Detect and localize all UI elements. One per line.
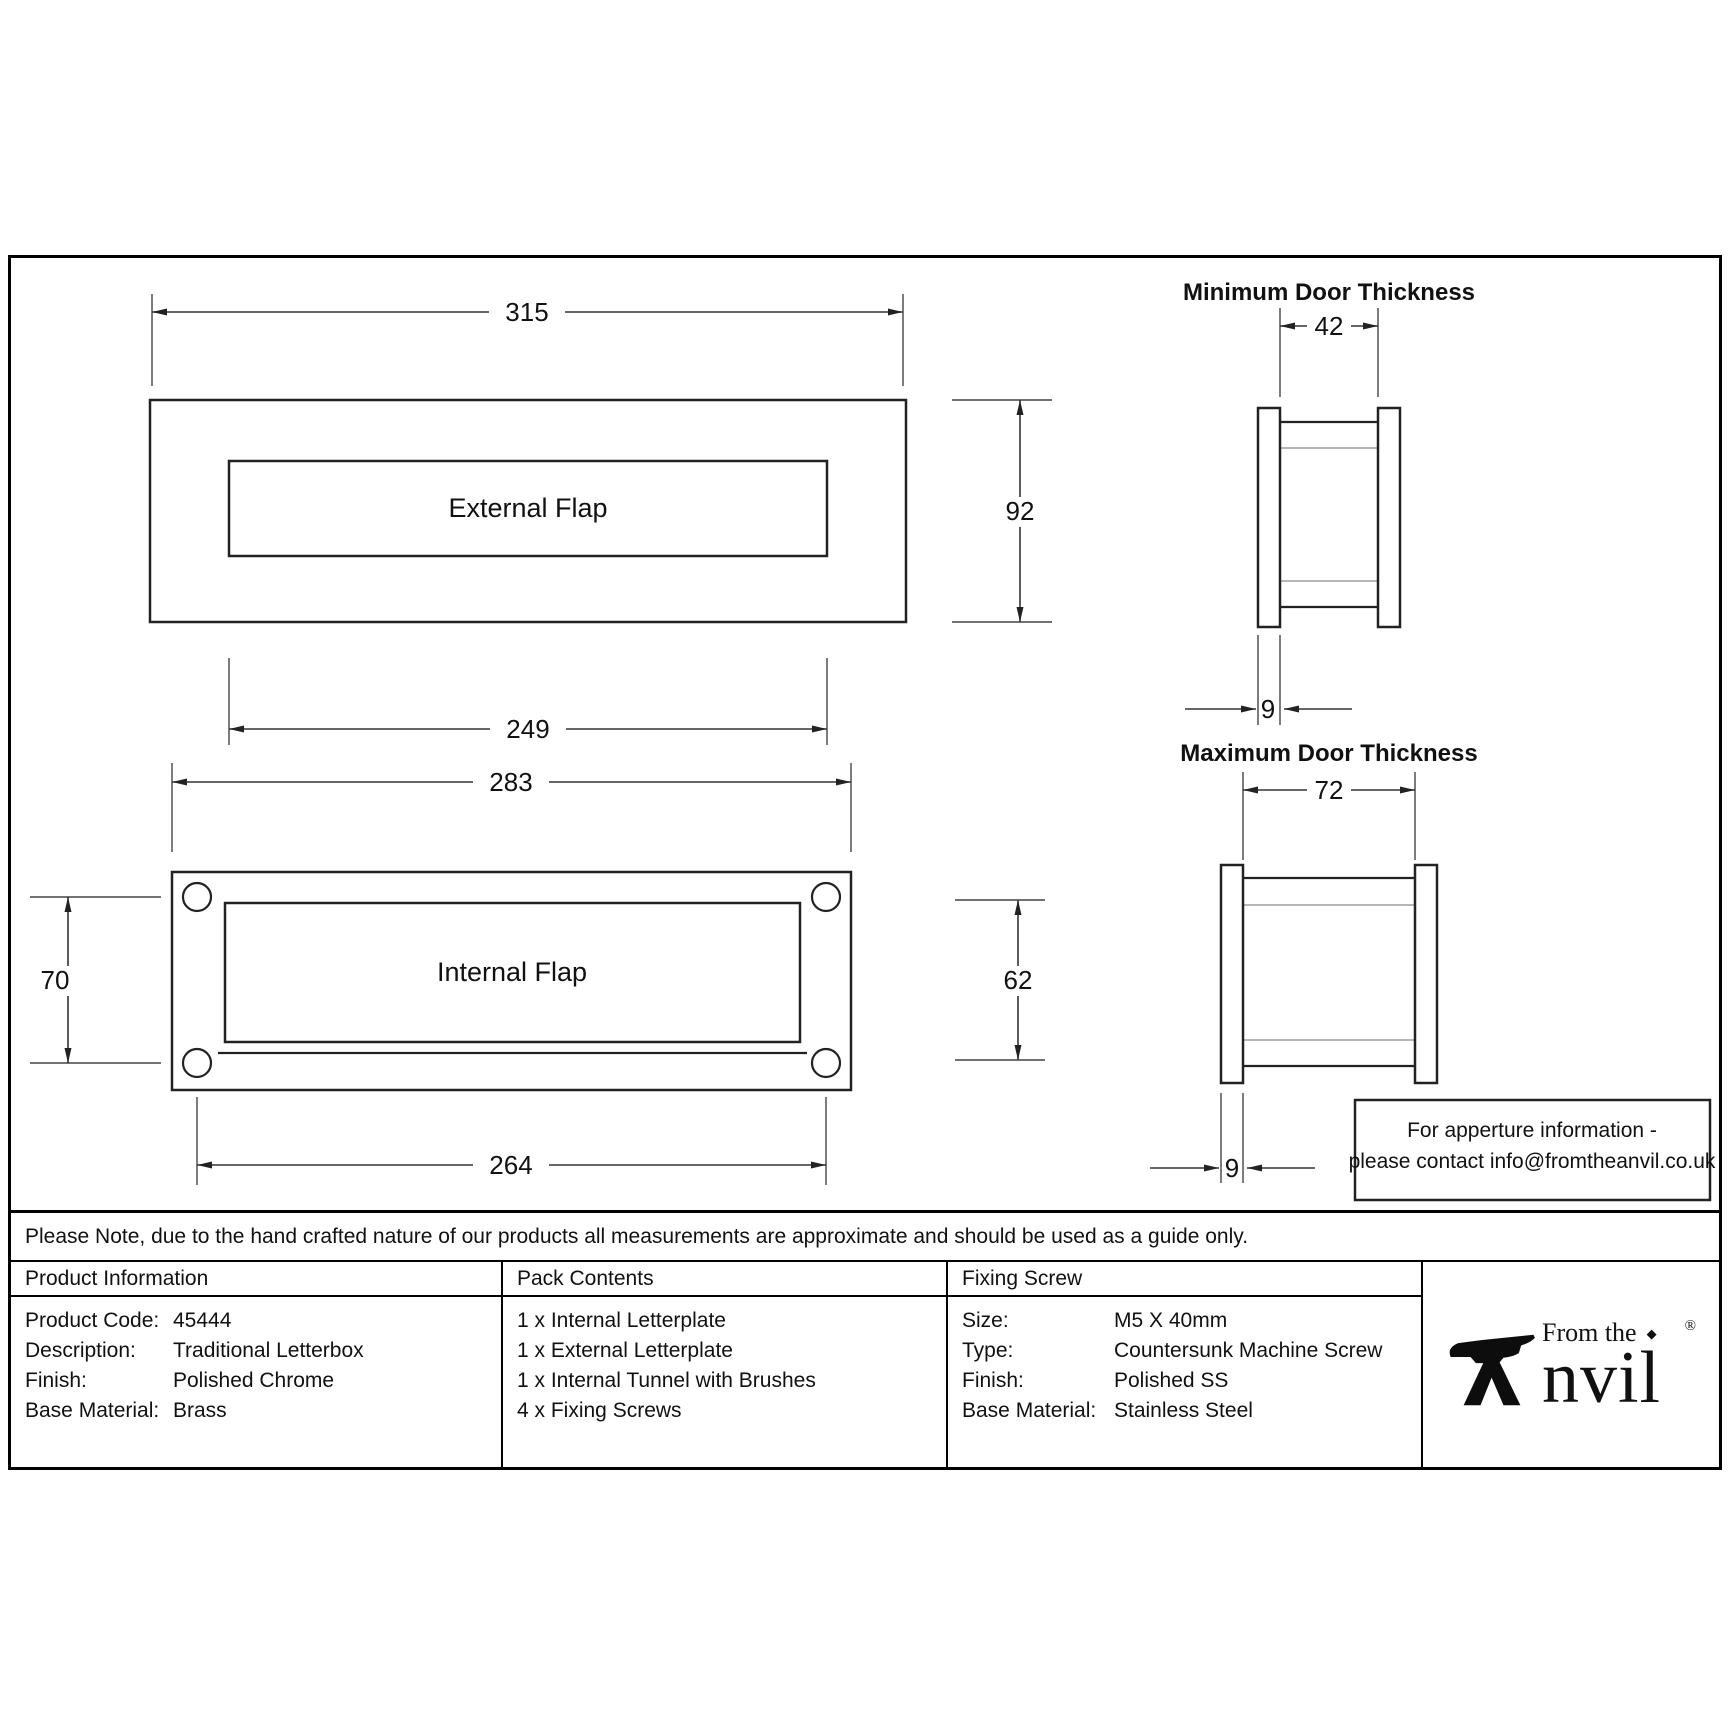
spec-sheet-frame: 315 External Flap 92 249 <box>8 255 1722 1470</box>
logo-wordmark: From the ◆ ® nvil <box>1542 1319 1696 1407</box>
row-label: Base Material: <box>25 1396 173 1426</box>
min-door-title: Minimum Door Thickness <box>1183 279 1475 306</box>
row-value: M5 X 40mm <box>1114 1306 1227 1336</box>
flap-width-dim: 249 <box>506 714 549 744</box>
plate-section <box>1415 865 1437 1083</box>
fixing-width-dim: 264 <box>489 1150 532 1180</box>
table-row: Description: Traditional Letterbox <box>25 1336 501 1366</box>
anvil-icon <box>1446 1329 1538 1411</box>
screw-hole <box>812 1049 840 1077</box>
pack-item: 1 x Internal Letterplate <box>517 1306 946 1336</box>
fixing-screw-column: Fixing Screw Size: M5 X 40mm Type: Count… <box>948 1262 1423 1467</box>
plate-section <box>1221 865 1243 1083</box>
pack-contents-body: 1 x Internal Letterplate 1 x External Le… <box>503 1297 946 1467</box>
table-row: Product Code: 45444 <box>25 1306 501 1336</box>
max-door-thickness-dim: 72 <box>1315 775 1344 805</box>
brand-logo-cell: From the ◆ ® nvil <box>1423 1262 1719 1467</box>
aperture-note-box: For apperture information - please conta… <box>1349 1100 1716 1200</box>
row-value: 45444 <box>173 1306 231 1336</box>
technical-drawing-area: 315 External Flap 92 249 <box>11 258 1719 1210</box>
row-label: Finish: <box>962 1366 1114 1396</box>
table-row: Finish: Polished Chrome <box>25 1366 501 1396</box>
min-door-thickness-view: Minimum Door Thickness 42 9 <box>1183 279 1475 725</box>
row-value: Polished SS <box>1114 1366 1228 1396</box>
max-door-plate-dim: 9 <box>1225 1153 1239 1183</box>
max-door-title: Maximum Door Thickness <box>1180 740 1477 767</box>
note-line-1: For apperture information - <box>1407 1119 1657 1142</box>
internal-plate-view: Internal Flap 70 62 264 <box>30 872 1045 1185</box>
row-label: Size: <box>962 1306 1114 1336</box>
screw-hole <box>812 883 840 911</box>
screw-hole <box>183 883 211 911</box>
fixing-screw-header: Fixing Screw <box>948 1262 1421 1297</box>
pack-item: 1 x External Letterplate <box>517 1336 946 1366</box>
table-row: Finish: Polished SS <box>962 1366 1421 1396</box>
disclaimer-row: Please Note, due to the hand crafted nat… <box>11 1210 1719 1262</box>
product-information-column: Product Information Product Code: 45444 … <box>11 1262 503 1467</box>
internal-width-dim: 283 <box>489 767 532 797</box>
letterbox-technical-drawing: 315 External Flap 92 249 <box>11 258 1719 1210</box>
pack-item: 1 x Internal Tunnel with Brushes <box>517 1366 946 1396</box>
spec-table: Product Information Product Code: 45444 … <box>11 1262 1719 1467</box>
row-value: Traditional Letterbox <box>173 1336 364 1366</box>
registered-mark-icon: ® <box>1685 1318 1696 1335</box>
anvil-legs <box>1464 1362 1521 1405</box>
external-width-dim: 315 <box>505 297 548 327</box>
row-value: Stainless Steel <box>1114 1396 1253 1426</box>
table-row: Type: Countersunk Machine Screw <box>962 1336 1421 1366</box>
row-label: Description: <box>25 1336 173 1366</box>
flap-height-dim: 62 <box>1004 965 1033 995</box>
from-the-anvil-logo: From the ◆ ® nvil <box>1446 1319 1696 1411</box>
row-label: Finish: <box>25 1366 173 1396</box>
screw-hole <box>183 1049 211 1077</box>
row-value: Countersunk Machine Screw <box>1114 1336 1382 1366</box>
plate-section <box>1258 408 1280 627</box>
internal-flap-label: Internal Flap <box>437 957 587 987</box>
row-value: Brass <box>173 1396 227 1426</box>
plate-section <box>1378 408 1400 627</box>
logo-name: nvil <box>1542 1349 1696 1407</box>
diamond-icon: ◆ <box>1647 1326 1657 1342</box>
row-label: Product Code: <box>25 1306 173 1336</box>
anvil-body <box>1450 1334 1535 1362</box>
min-door-thickness-dim: 42 <box>1315 311 1344 341</box>
note-line-2: please contact info@fromtheanvil.co.uk <box>1349 1150 1716 1173</box>
pack-item: 4 x Fixing Screws <box>517 1396 946 1426</box>
pack-contents-header: Pack Contents <box>503 1262 946 1297</box>
table-row: Size: M5 X 40mm <box>962 1306 1421 1336</box>
table-row: Base Material: Stainless Steel <box>962 1396 1421 1426</box>
disclaimer-text: Please Note, due to the hand crafted nat… <box>25 1225 1248 1249</box>
product-information-header: Product Information <box>11 1262 501 1297</box>
external-plate-view: 315 External Flap 92 <box>150 294 1052 622</box>
row-label: Base Material: <box>962 1396 1114 1426</box>
row-value: Polished Chrome <box>173 1366 334 1396</box>
min-door-plate-dim: 9 <box>1261 694 1275 724</box>
fixing-screw-body: Size: M5 X 40mm Type: Countersunk Machin… <box>948 1297 1421 1467</box>
external-height-dim: 92 <box>1006 496 1035 526</box>
middle-dimensions: 249 283 <box>172 658 851 852</box>
fixing-height-dim: 70 <box>41 965 70 995</box>
table-row: Base Material: Brass <box>25 1396 501 1426</box>
row-label: Type: <box>962 1336 1114 1366</box>
external-flap-label: External Flap <box>448 493 607 523</box>
product-information-body: Product Code: 45444 Description: Traditi… <box>11 1297 501 1467</box>
pack-contents-column: Pack Contents 1 x Internal Letterplate 1… <box>503 1262 948 1467</box>
